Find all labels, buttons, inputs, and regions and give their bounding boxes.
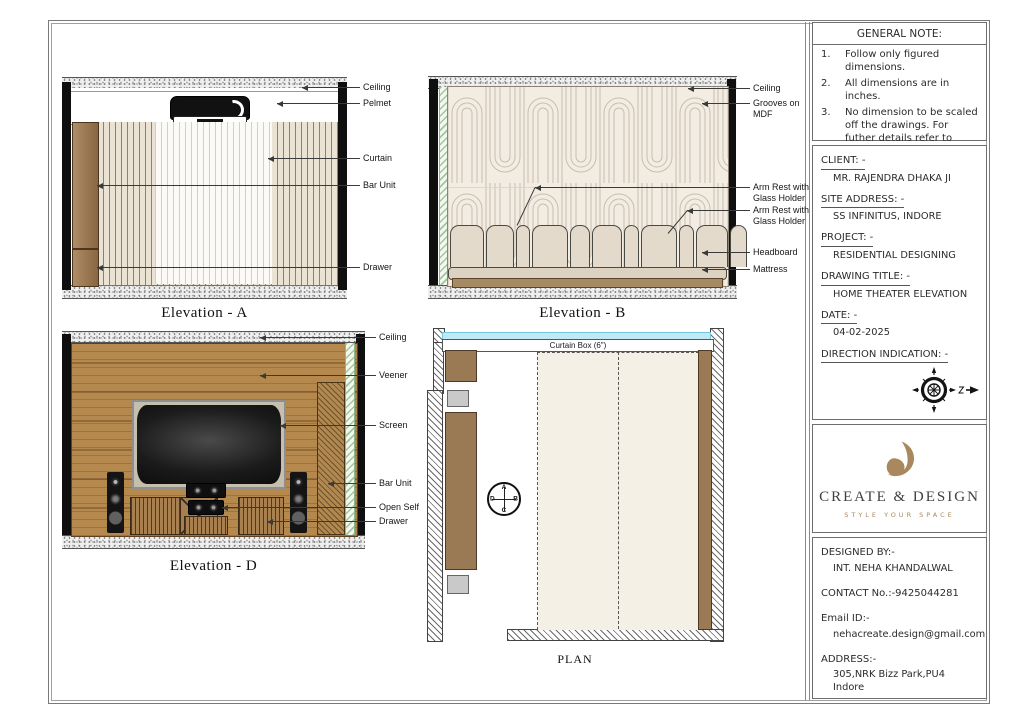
date-field: DATE: - 04-02-2025 bbox=[821, 310, 978, 340]
general-note-box: GENERAL NOTE: 1. Follow only figured dim… bbox=[812, 22, 987, 141]
elevation-direction-marker: A B C D bbox=[487, 482, 521, 516]
title-block-divider bbox=[805, 22, 810, 700]
floor-hatch-band bbox=[62, 535, 365, 549]
tv-screen-frame bbox=[132, 400, 286, 489]
client-field: CLIENT: - MR. RAJENDRA DHAKA JI bbox=[821, 155, 978, 185]
open-shelf-drawer bbox=[184, 516, 228, 535]
speaker-tower-right bbox=[290, 472, 307, 533]
marker-letter-d: D bbox=[490, 496, 495, 503]
project-field: PROJECT: - RESIDENTIAL DESIGNING bbox=[821, 232, 978, 262]
note-text: All dimensions are in inches. bbox=[845, 77, 986, 103]
wall-bottom bbox=[507, 629, 724, 641]
leader-ceiling bbox=[260, 337, 376, 338]
date-label: DATE: - bbox=[821, 310, 857, 325]
address-value: 305,NRK Bizz Park,PU4 Indore bbox=[833, 669, 978, 693]
label-arm-rest-1: Arm Rest with Glass Holder bbox=[753, 182, 815, 204]
leader-curtain bbox=[268, 158, 360, 159]
note-number: 2. bbox=[813, 77, 845, 103]
email-label: Email ID:- bbox=[821, 613, 870, 624]
label-drawer: Drawer bbox=[363, 262, 413, 273]
leader-veener bbox=[260, 375, 376, 376]
direction-field: DIRECTION INDICATION: - bbox=[821, 349, 978, 364]
label-bar-unit: Bar Unit bbox=[363, 180, 413, 191]
wall-right bbox=[710, 328, 724, 642]
leader-mattress bbox=[702, 269, 750, 270]
elevation-a: Ceiling Pelmet Curtain Bar Unit Drawer E… bbox=[62, 75, 347, 320]
label-ceiling: Ceiling bbox=[379, 332, 429, 343]
leader-open-self bbox=[222, 507, 376, 508]
note-number: 1. bbox=[813, 48, 845, 74]
gray-block-lower bbox=[447, 575, 469, 594]
elevation-a-title: Elevation - A bbox=[62, 305, 347, 322]
contact-field: CONTACT No.:-9425044281 bbox=[821, 588, 978, 601]
compass-icon bbox=[904, 365, 980, 415]
leader-bar-unit bbox=[328, 483, 376, 484]
email-field: Email ID:- nehacreate.design@gmail.com bbox=[821, 613, 978, 641]
leader-arm-rest-2 bbox=[687, 210, 750, 211]
brand-name: CREATE & DESIGN bbox=[819, 489, 980, 506]
label-mattress: Mattress bbox=[753, 264, 813, 275]
drawing-title-label: DRAWING TITLE: - bbox=[821, 271, 910, 286]
label-veener: Veener bbox=[379, 370, 429, 381]
note-item: 2. All dimensions are in inches. bbox=[813, 77, 986, 103]
designed-by-value: INT. NEHA KHANDALWAL bbox=[833, 563, 978, 575]
tv-screen bbox=[137, 405, 281, 484]
elevation-d-title: Elevation - D bbox=[62, 558, 365, 575]
label-ceiling: Ceiling bbox=[363, 82, 413, 93]
brand-logo-icon bbox=[879, 439, 921, 483]
label-drawer: Drawer bbox=[379, 516, 429, 527]
elevation-b: Ceiling Grooves on MDF Arm Rest with Gla… bbox=[428, 75, 737, 320]
bar-unit-cabinet bbox=[72, 122, 99, 287]
slat-cabinet-right bbox=[238, 497, 284, 535]
general-note-title: GENERAL NOTE: bbox=[813, 23, 986, 45]
left-unit-tall bbox=[445, 412, 477, 570]
center-speaker-bottom bbox=[188, 500, 224, 515]
address-field: ADDRESS:- 305,NRK Bizz Park,PU4 Indore bbox=[821, 654, 978, 694]
curtain-sheer-center bbox=[155, 122, 272, 284]
date-value: 04-02-2025 bbox=[833, 327, 978, 339]
center-speaker-top bbox=[186, 483, 226, 498]
wall-left-lower bbox=[427, 390, 443, 642]
ceiling-line bbox=[71, 91, 338, 92]
address-label: ADDRESS:- bbox=[821, 654, 876, 665]
marker-letter-c: C bbox=[502, 507, 507, 514]
label-pelmet: Pelmet bbox=[363, 98, 413, 109]
project-value: RESIDENTIAL DESIGNING bbox=[833, 250, 978, 262]
leader-grooves bbox=[702, 103, 750, 104]
drawing-sheet: Ceiling Pelmet Curtain Bar Unit Drawer E… bbox=[0, 0, 1024, 724]
speaker-tower-left bbox=[107, 472, 124, 533]
label-screen: Screen bbox=[379, 420, 429, 431]
leader-headboard bbox=[702, 252, 750, 253]
elevation-d: Ceiling Veener Screen Bar Unit Open Self… bbox=[62, 330, 365, 580]
leader-screen bbox=[280, 425, 376, 426]
leader-pelmet bbox=[277, 103, 360, 104]
left-unit-small bbox=[445, 350, 477, 382]
leader-arm-rest-1 bbox=[535, 187, 750, 188]
bed-base bbox=[452, 278, 723, 288]
site-address-label: SITE ADDRESS: - bbox=[821, 194, 904, 209]
bar-unit bbox=[317, 382, 345, 535]
site-address-field: SITE ADDRESS: - SS INFINITUS, INDORE bbox=[821, 194, 978, 224]
contact-value: CONTACT No.:-9425044281 bbox=[821, 588, 959, 599]
wall-column-left bbox=[62, 334, 71, 535]
leader-ceiling bbox=[688, 88, 750, 89]
site-address-value: SS INFINITUS, INDORE bbox=[833, 211, 978, 223]
leader-drawer bbox=[97, 267, 360, 268]
leader-drawer bbox=[267, 521, 376, 522]
gray-block-upper bbox=[447, 390, 469, 407]
wall-column-right bbox=[338, 82, 347, 290]
project-label: PROJECT: - bbox=[821, 232, 873, 247]
project-info-box: CLIENT: - MR. RAJENDRA DHAKA JI SITE ADD… bbox=[812, 145, 987, 420]
designed-by-field: DESIGNED BY:- INT. NEHA KHANDALWAL bbox=[821, 547, 978, 575]
marker-letter-b: B bbox=[513, 496, 518, 503]
wall-column-left bbox=[62, 82, 71, 290]
note-text: Follow only figured dimensions. bbox=[845, 48, 986, 74]
brand-box: CREATE & DESIGN STYLE YOUR SPACE bbox=[812, 424, 987, 533]
direction-label: DIRECTION INDICATION: - bbox=[821, 349, 948, 364]
label-curtain: Curtain bbox=[363, 153, 413, 164]
client-label: CLIENT: - bbox=[821, 155, 865, 170]
label-grooves: Grooves on MDF bbox=[753, 98, 811, 120]
drawing-title-field: DRAWING TITLE: - HOME THEATER ELEVATION bbox=[821, 271, 978, 301]
slat-cabinet-left bbox=[130, 497, 182, 535]
label-arm-rest-2: Arm Rest with Glass Holder bbox=[753, 205, 815, 227]
label-ceiling: Ceiling bbox=[753, 83, 813, 94]
floor-divider-dashed bbox=[618, 352, 619, 629]
leader-bar-unit bbox=[97, 185, 360, 186]
floor-hatch-band bbox=[62, 285, 347, 299]
drawing-title-value: HOME THEATER ELEVATION bbox=[833, 289, 978, 301]
right-wall-unit bbox=[698, 350, 712, 630]
note-item: 1. Follow only figured dimensions. bbox=[813, 48, 986, 74]
email-value: nehacreate.design@gmail.com bbox=[833, 629, 978, 641]
plan-title: PLAN bbox=[425, 652, 725, 667]
compass-wrap bbox=[813, 363, 986, 419]
elevation-b-title: Elevation - B bbox=[428, 305, 737, 322]
plan: Curtain Box (6") A B C D PLAN bbox=[425, 328, 725, 668]
headboard-cushions bbox=[450, 225, 747, 267]
brand-tagline: STYLE YOUR SPACE bbox=[844, 511, 955, 519]
marker-letter-a: A bbox=[502, 484, 507, 491]
client-value: MR. RAJENDRA DHAKA JI bbox=[833, 173, 978, 185]
label-headboard: Headboard bbox=[753, 247, 813, 258]
curtain-box-label-band: Curtain Box (6") bbox=[442, 339, 714, 352]
credits-box: DESIGNED BY:- INT. NEHA KHANDALWAL CONTA… bbox=[812, 537, 987, 699]
drawer-divider bbox=[73, 248, 98, 250]
wall-column-left bbox=[429, 79, 438, 285]
leader-ceiling bbox=[302, 87, 360, 88]
label-bar-unit: Bar Unit bbox=[379, 478, 429, 489]
designed-by-label: DESIGNED BY:- bbox=[821, 547, 895, 558]
